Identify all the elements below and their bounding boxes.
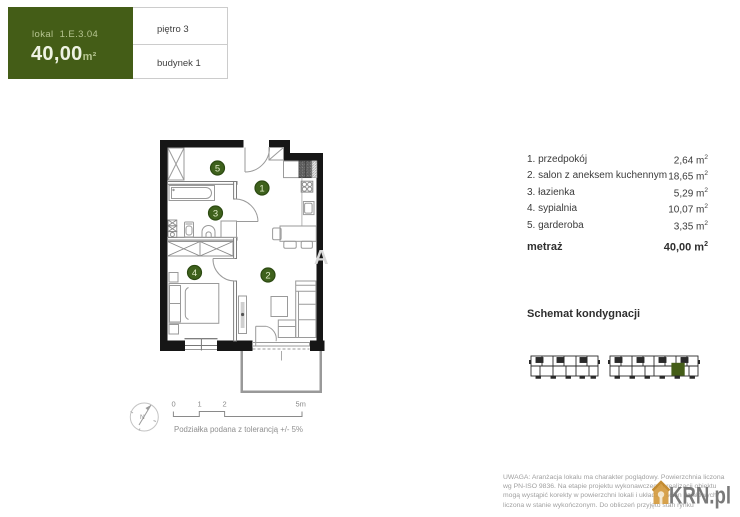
svg-text:KRN.pl: KRN.pl <box>669 483 731 510</box>
svg-text:Podziałka podana z tolerancją: Podziałka podana z tolerancją +/- 5% <box>174 425 303 434</box>
svg-text:3: 3 <box>213 209 218 220</box>
svg-text:0: 0 <box>172 400 176 409</box>
svg-text:1: 1 <box>198 400 202 409</box>
svg-text:N: N <box>140 414 145 421</box>
svg-text:2: 2 <box>223 400 227 409</box>
svg-text:4: 4 <box>192 268 197 279</box>
svg-text:2: 2 <box>265 271 270 282</box>
svg-text:5: 5 <box>215 164 220 175</box>
svg-text:1: 1 <box>259 184 264 195</box>
svg-text:5m: 5m <box>296 400 306 409</box>
svg-text:A: A <box>314 247 328 269</box>
